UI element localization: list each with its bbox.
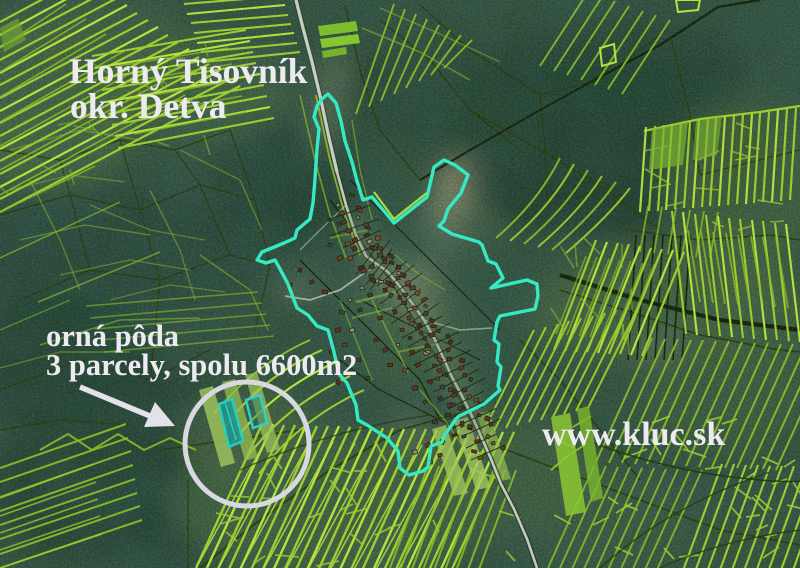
svg-text:Horný Tisovník: Horný Tisovník [69,51,308,91]
svg-text:okr. Detva: okr. Detva [70,86,227,126]
svg-text:www.kluc.sk: www.kluc.sk [542,416,725,453]
svg-text:3 parcely, spolu 6600m2: 3 parcely, spolu 6600m2 [46,348,357,382]
